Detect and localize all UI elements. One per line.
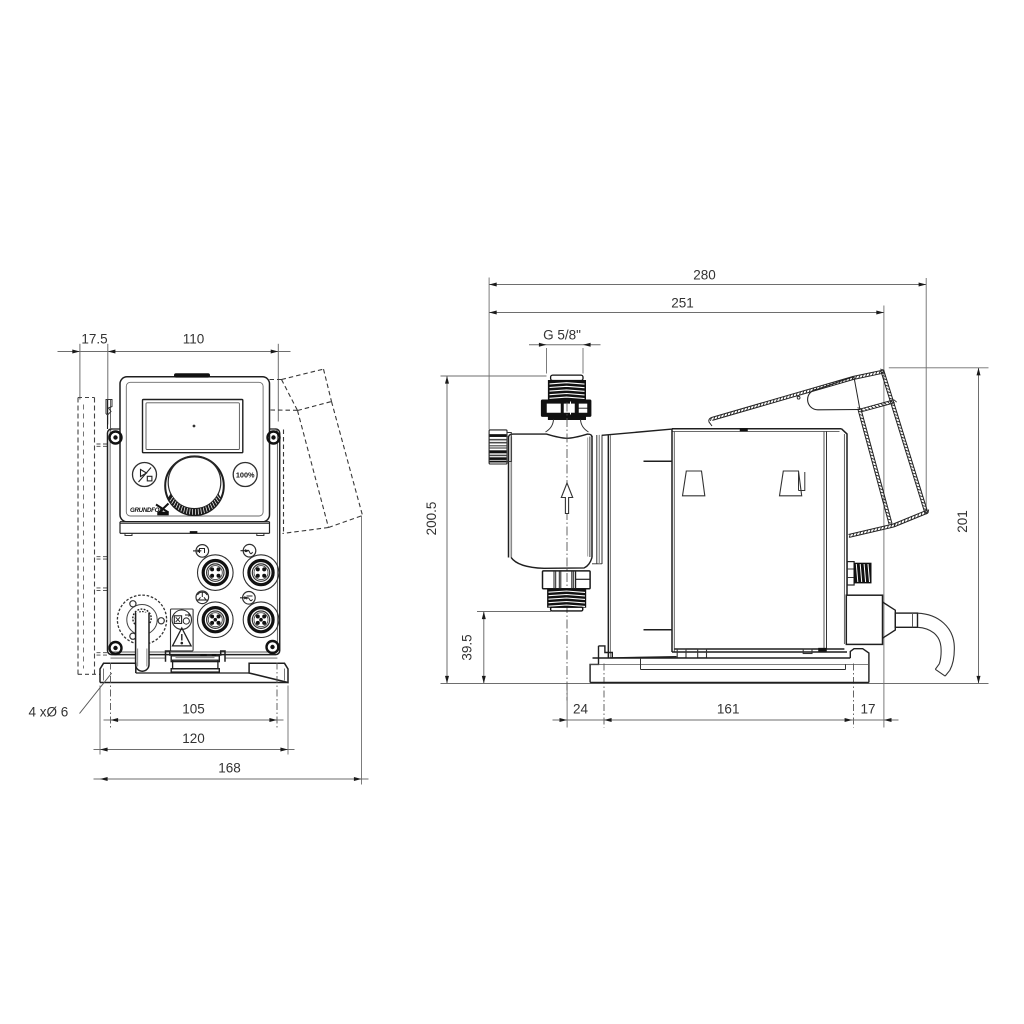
svg-text:251: 251 bbox=[671, 296, 694, 311]
svg-text:201: 201 bbox=[955, 510, 970, 533]
svg-text:168: 168 bbox=[218, 761, 241, 776]
svg-text:G 5/8": G 5/8" bbox=[543, 328, 581, 343]
svg-text:105: 105 bbox=[182, 702, 205, 717]
svg-text:24: 24 bbox=[573, 702, 589, 717]
svg-text:17.5: 17.5 bbox=[81, 332, 107, 347]
svg-text:100%: 100% bbox=[236, 470, 255, 479]
svg-text:280: 280 bbox=[693, 268, 716, 283]
svg-text:17: 17 bbox=[860, 702, 875, 717]
svg-text:120: 120 bbox=[182, 731, 205, 746]
svg-text:161: 161 bbox=[717, 702, 740, 717]
svg-text:4 xØ 6: 4 xØ 6 bbox=[29, 705, 69, 720]
svg-text:39.5: 39.5 bbox=[460, 634, 475, 660]
svg-text:110: 110 bbox=[183, 332, 205, 347]
svg-text:200.5: 200.5 bbox=[424, 502, 439, 536]
